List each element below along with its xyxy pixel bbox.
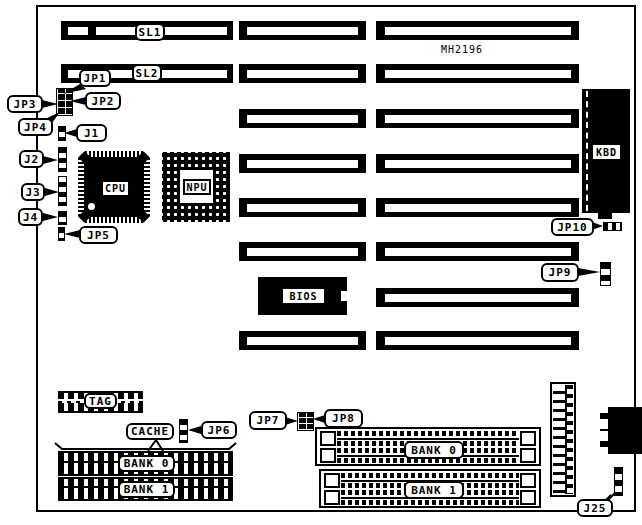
callout-jp10: JP10: [551, 218, 594, 236]
cpu-label: CPU: [101, 180, 130, 197]
callout-jp9: JP9: [541, 263, 579, 282]
callout-sl1: SL1: [135, 23, 165, 41]
callout-j25: J25: [577, 499, 613, 517]
callout-jp3: JP3: [7, 95, 43, 113]
callout-jp2: JP2: [85, 92, 121, 110]
kbd-label: KBD: [592, 144, 621, 160]
callout-jp8: JP8: [324, 409, 363, 428]
callout-j4: J4: [18, 208, 43, 226]
callout-j1: J1: [76, 124, 107, 142]
callout-bank0-right: BANK 0: [404, 441, 464, 459]
callout-bank1-left: BANK 1: [118, 481, 175, 498]
callout-jp5: JP5: [79, 226, 118, 244]
callout-jp7: JP7: [249, 411, 287, 430]
callout-j3: J3: [21, 183, 45, 201]
npu-label: NPU: [183, 179, 211, 195]
callout-sl2: SL2: [132, 64, 162, 82]
bios-label: BIOS: [282, 288, 325, 304]
callout-tag: TAG: [84, 393, 117, 409]
motherboard-diagram: MH2196 CPU: [0, 0, 642, 525]
callout-bank0-left: BANK 0: [118, 455, 175, 472]
callout-cache: CACHE: [126, 423, 174, 440]
callout-jp4: JP4: [18, 118, 53, 136]
callout-jp1: JP1: [79, 69, 111, 87]
callout-j2: J2: [19, 150, 44, 168]
callout-jp6: JP6: [201, 421, 237, 439]
callout-bank1-right: BANK 1: [404, 481, 464, 499]
